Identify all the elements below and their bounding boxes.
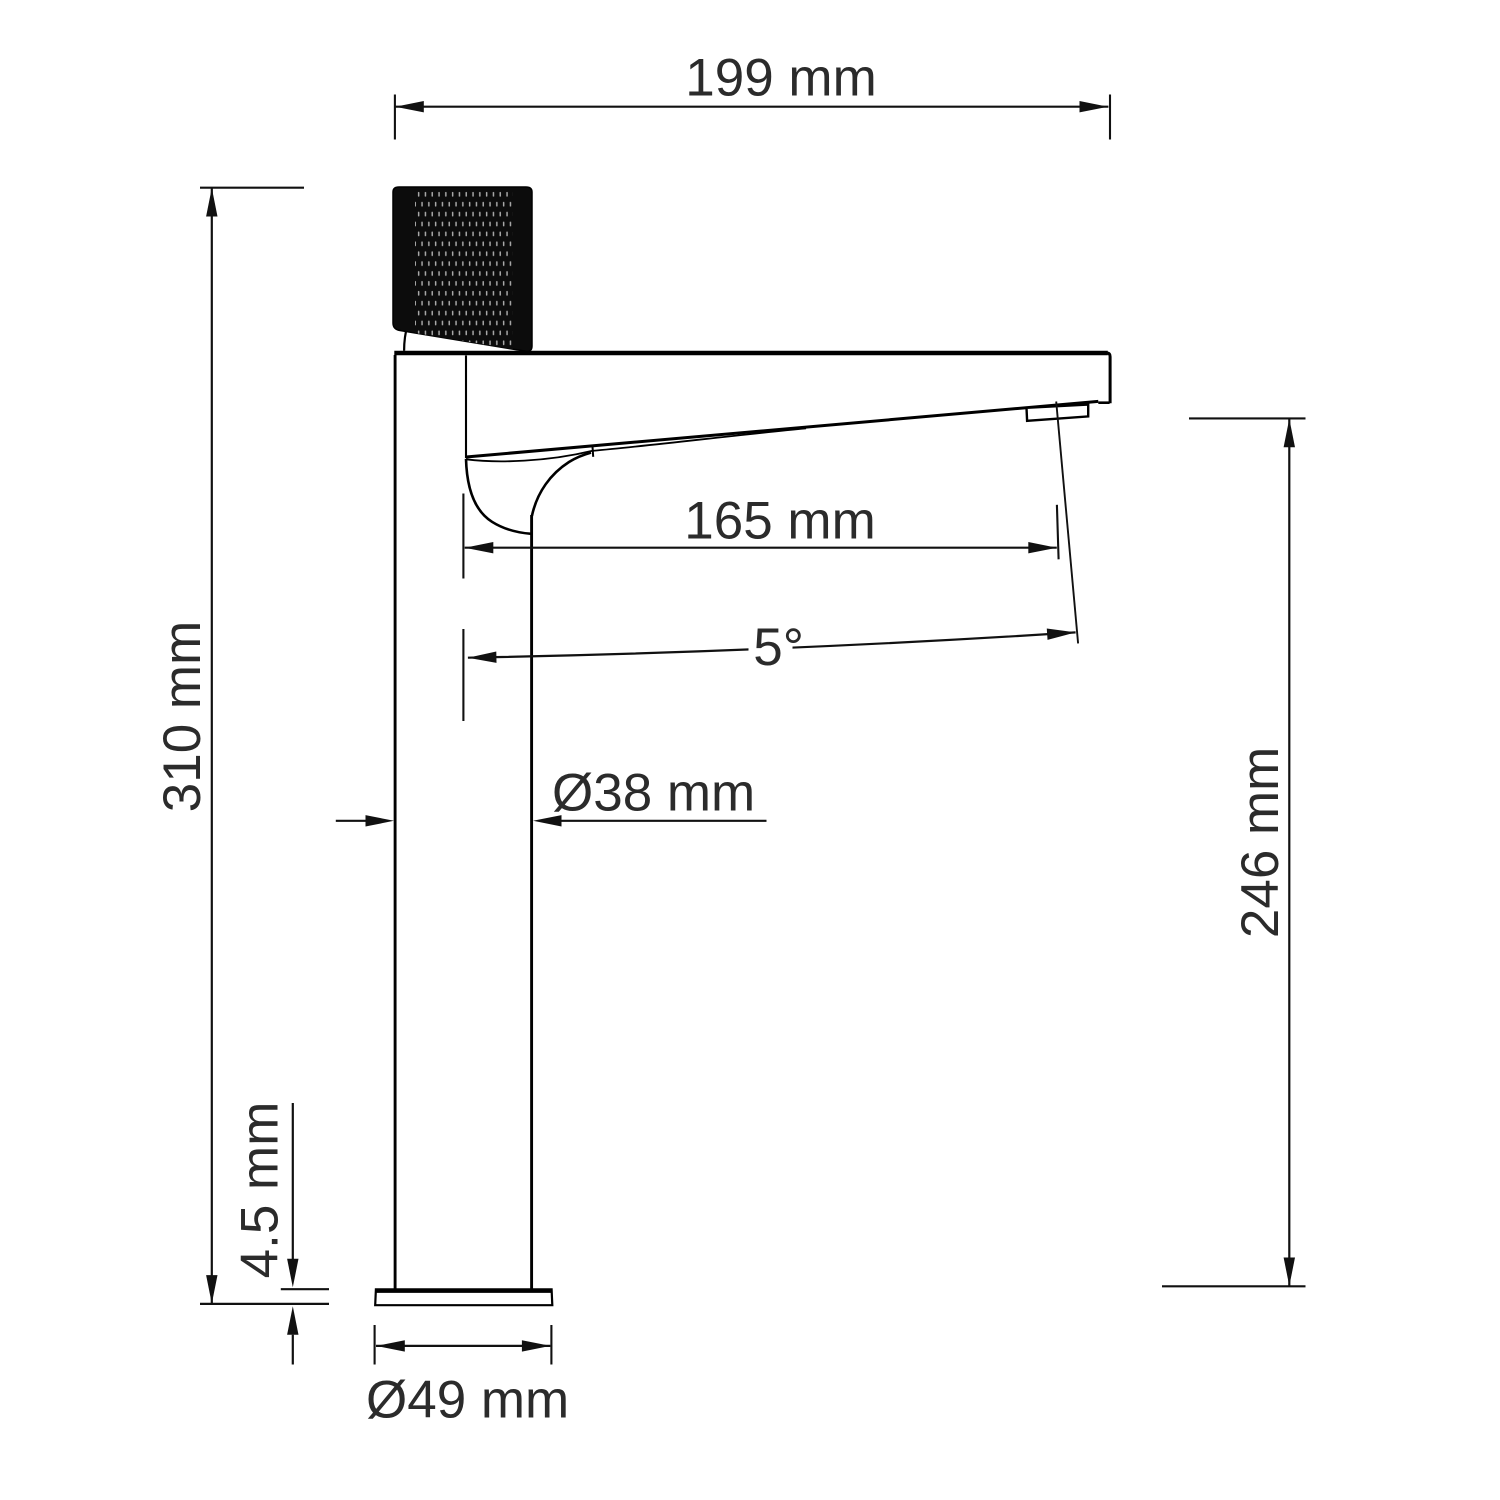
svg-text:Ø38 mm: Ø38 mm <box>552 764 755 823</box>
svg-text:199 mm: 199 mm <box>685 49 876 108</box>
svg-text:5°: 5° <box>753 618 804 677</box>
svg-text:246 mm: 246 mm <box>1231 747 1290 938</box>
svg-text:Ø49 mm: Ø49 mm <box>366 1371 569 1430</box>
svg-text:165 mm: 165 mm <box>684 492 875 551</box>
svg-text:4.5 mm: 4.5 mm <box>231 1102 290 1279</box>
svg-text:310 mm: 310 mm <box>153 621 212 812</box>
